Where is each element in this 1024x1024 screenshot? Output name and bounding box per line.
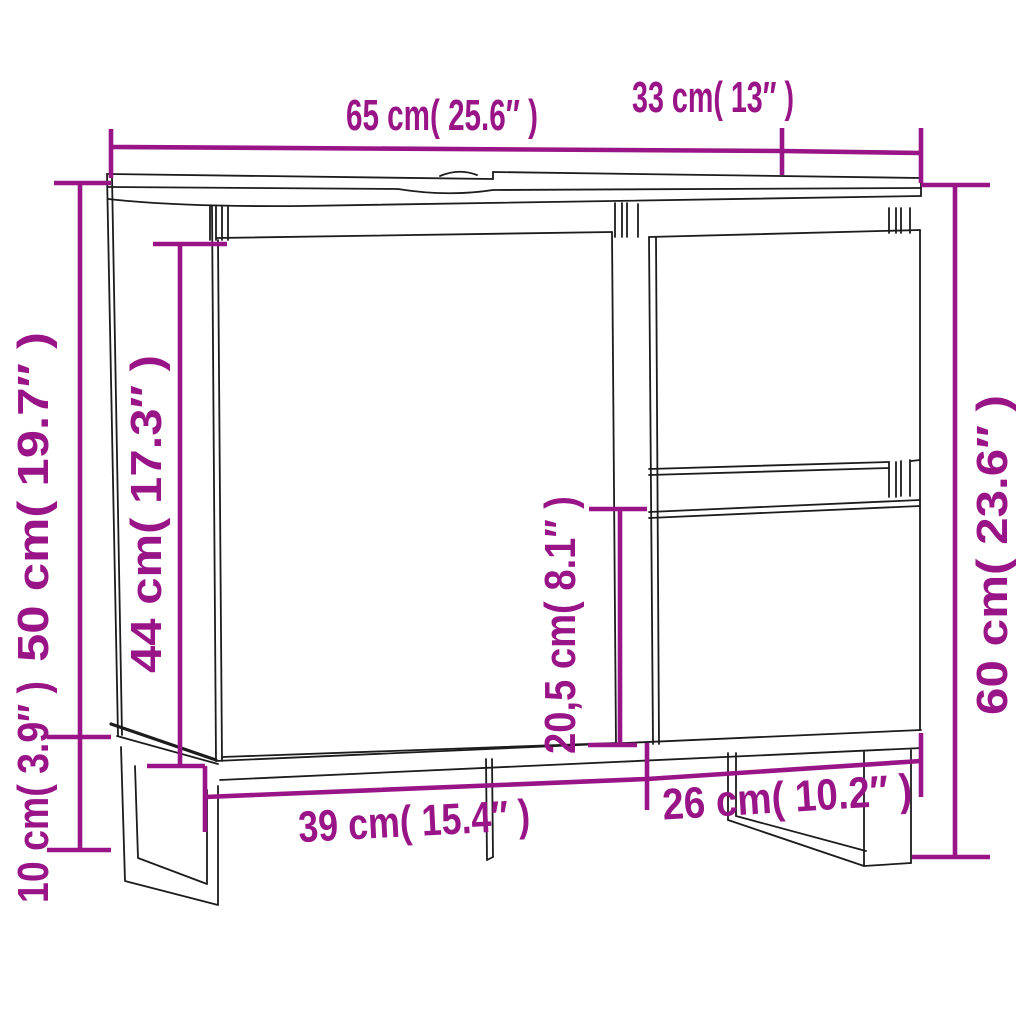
dim-label-door-height: 44 cm( 17.3″ ): [122, 355, 171, 673]
cabinet-dimension-diagram: 65 cm( 25.6″ ) 33 cm( 13″ ) 50 cm( 19.7″…: [0, 0, 1024, 1024]
dim-label-leg-height: 10 cm( 3.9″ ): [9, 681, 58, 903]
top-rail-posts: [210, 203, 910, 240]
dim-label-bottom-width-left: 39 cm( 15.4″ ): [297, 791, 531, 852]
dim-label-top-depth: 33 cm( 13″ ): [632, 73, 794, 122]
dim-label-left-height: 50 cm( 19.7″ ): [9, 332, 58, 662]
dimension-diagram-page: 65 cm( 25.6″ ) 33 cm( 13″ ) 50 cm( 19.7″…: [0, 0, 1024, 1024]
drawer-unit: [649, 230, 920, 744]
countertop: [107, 172, 921, 206]
dim-label-drawer-height: 20,5 cm( 8.1″ ): [536, 496, 585, 754]
dim-drawer-height: [588, 509, 647, 745]
dim-label-right-height: 60 cm( 23.6″ ): [968, 395, 1017, 715]
dim-label-top-width: 65 cm( 25.6″ ): [346, 91, 538, 140]
